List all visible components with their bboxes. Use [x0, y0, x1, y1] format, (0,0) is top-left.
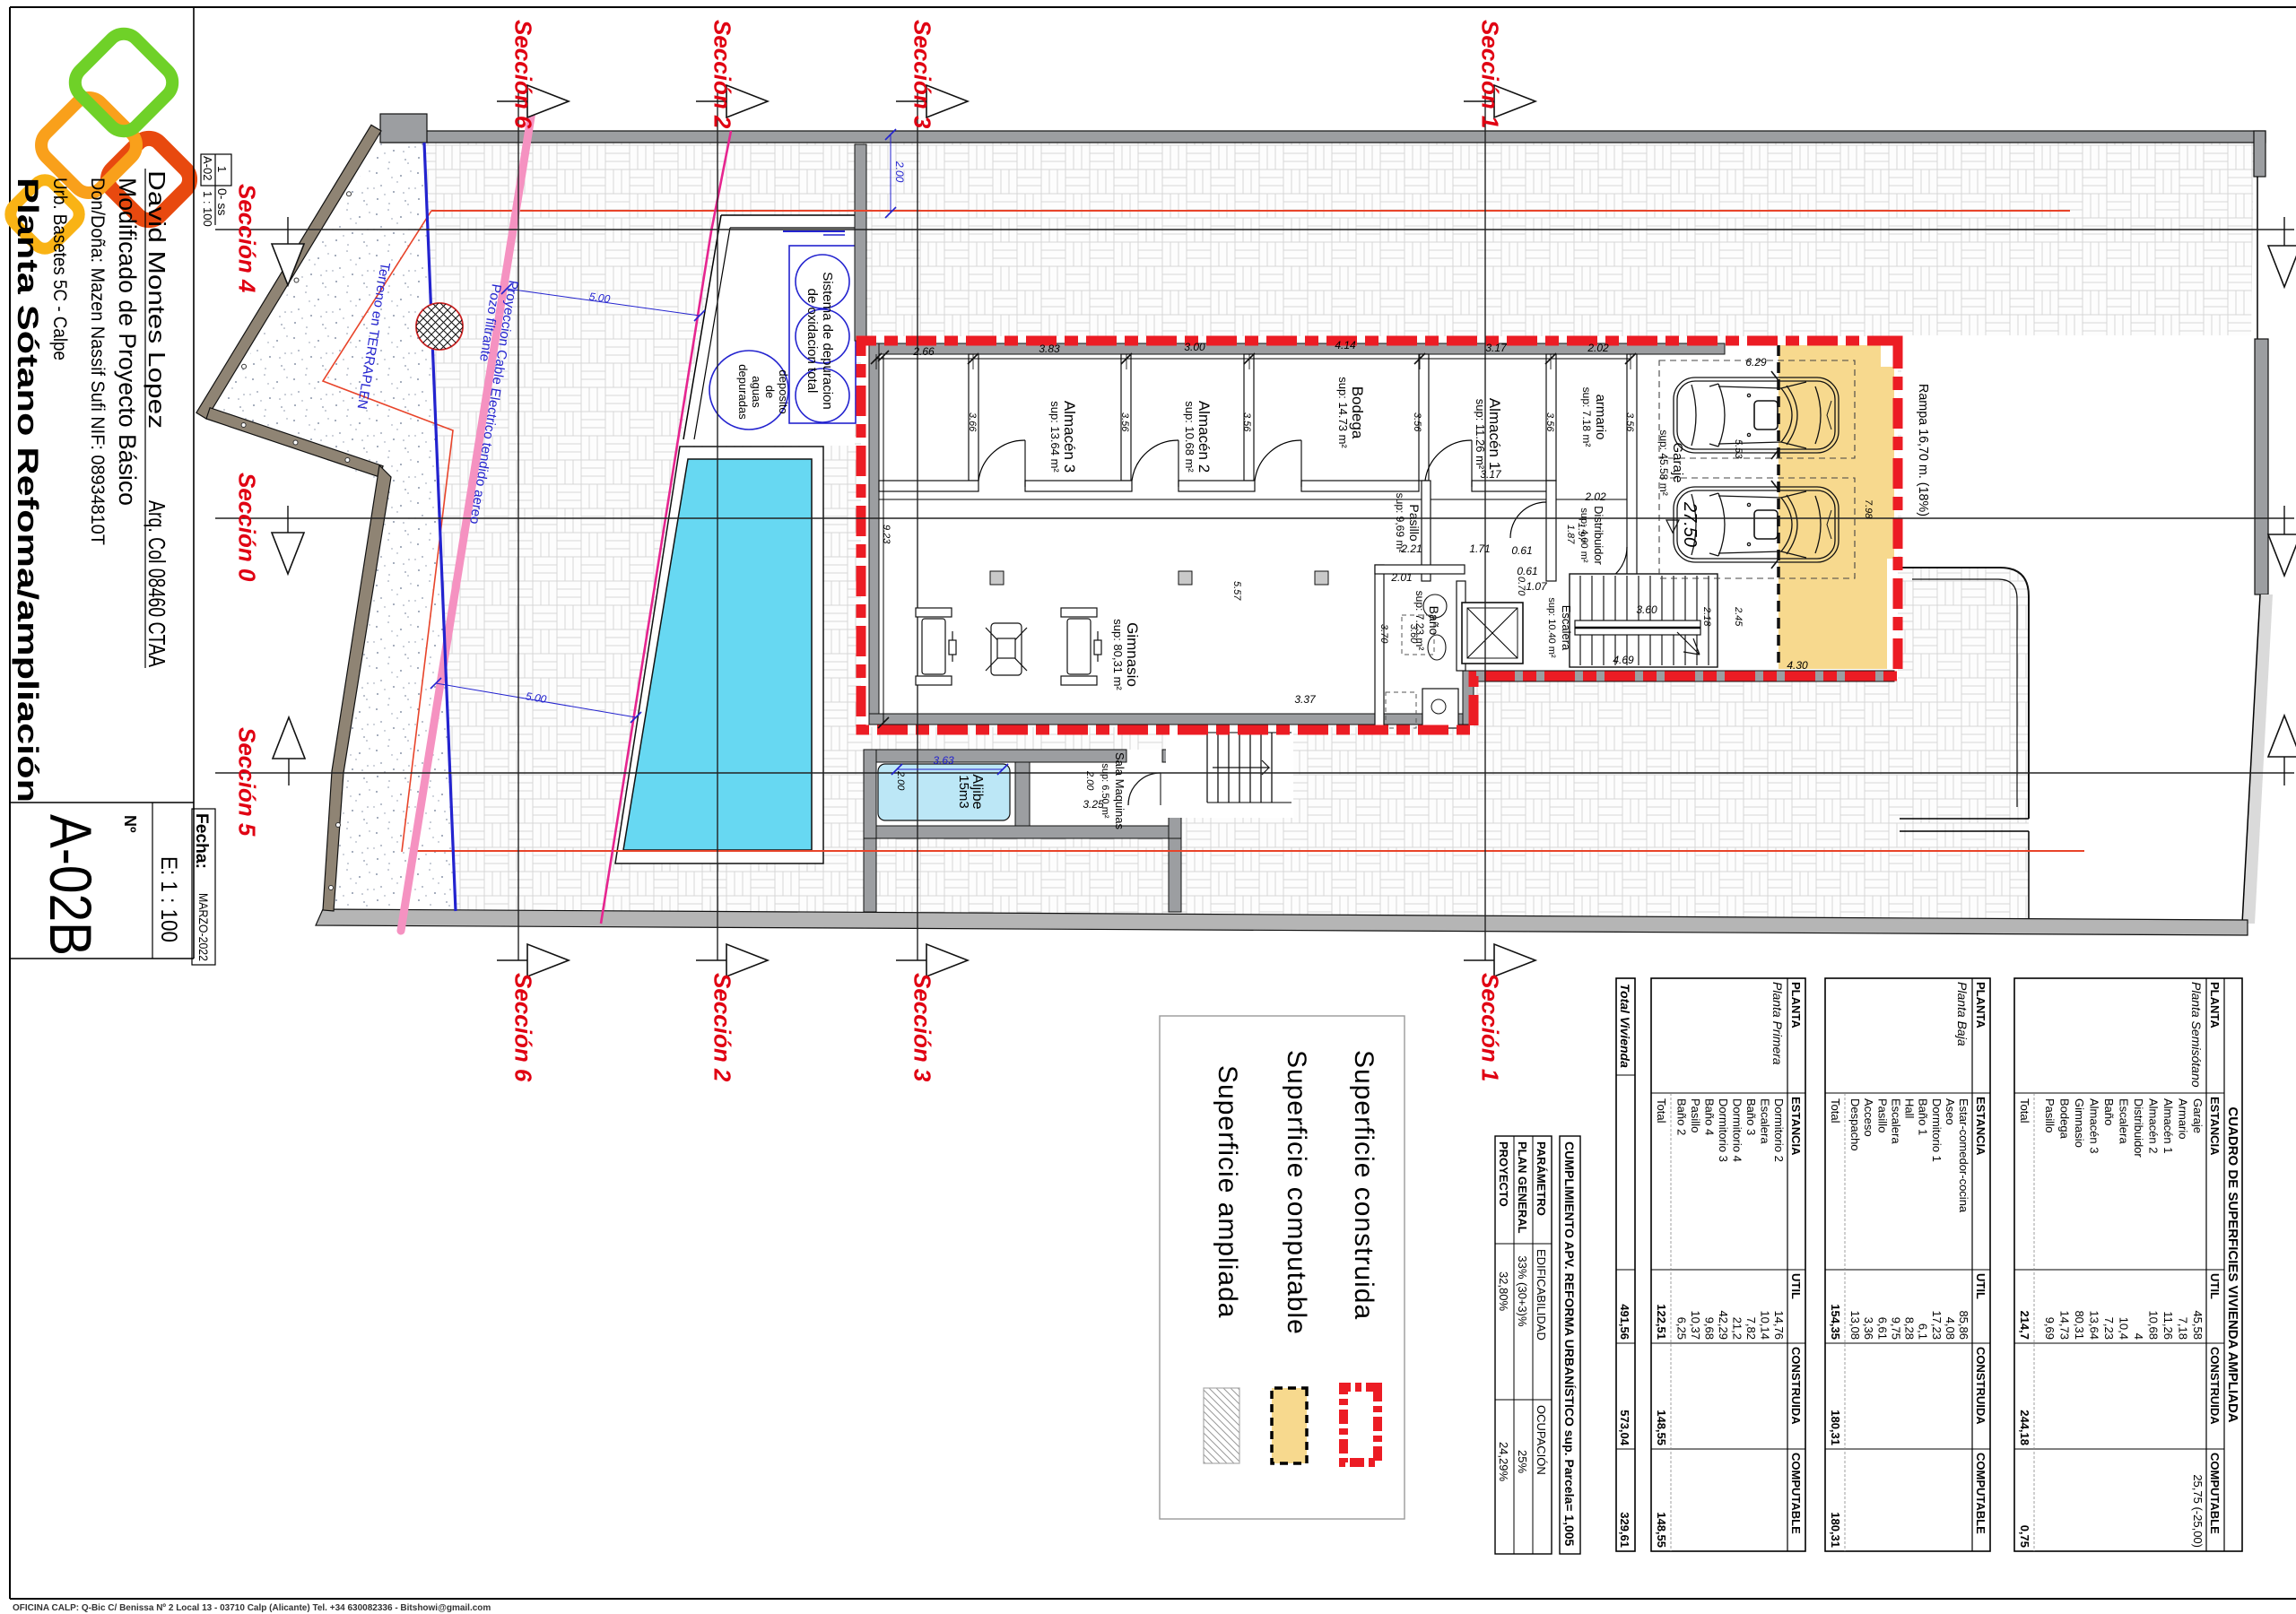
svg-text:Total Vivienda: Total Vivienda [1618, 984, 1632, 1068]
svg-text:3,36: 3,36 [1862, 1317, 1875, 1340]
svg-text:15m3: 15m3 [956, 775, 971, 809]
svg-text:Distribuidor: Distribuidor [2132, 1098, 2145, 1158]
svg-text:E: 1 : 100: E: 1 : 100 [156, 856, 181, 942]
svg-text:329,61: 329,61 [1618, 1512, 1631, 1548]
svg-text:CONSTRUIDA: CONSTRUIDA [2208, 1347, 2222, 1425]
svg-text:Almacén 2: Almacén 2 [1196, 401, 1213, 473]
svg-text:Sección 6: Sección 6 [510, 973, 537, 1082]
svg-text:25%: 25% [1516, 1450, 1529, 1473]
svg-text:PLANTA: PLANTA [1974, 982, 1987, 1028]
svg-text:CONSTRUIDA: CONSTRUIDA [1789, 1347, 1803, 1425]
svg-text:45,58: 45,58 [2191, 1310, 2205, 1340]
svg-text:Pasillo: Pasillo [1875, 1098, 1889, 1132]
svg-text:Baño: Baño [2102, 1098, 2116, 1125]
svg-text:Planta Sótano Refoma/ampliació: Planta Sótano Refoma/ampliación [12, 178, 44, 803]
svg-text:14,73: 14,73 [2058, 1310, 2072, 1340]
svg-text:180,31: 180,31 [1829, 1512, 1842, 1548]
svg-text:Gimnasio: Gimnasio [1124, 622, 1141, 687]
svg-text:2.00: 2.00 [1084, 770, 1095, 791]
svg-text:sup: 13.64 m²: sup: 13.64 m² [1048, 401, 1062, 473]
svg-text:Nº: Nº [121, 815, 139, 833]
svg-text:MARZO-2022: MARZO-2022 [196, 893, 210, 961]
svg-text:2.02: 2.02 [1587, 342, 1609, 354]
svg-text:Almacén 3: Almacén 3 [2088, 1098, 2101, 1153]
svg-text:Escalera: Escalera [1889, 1098, 1902, 1144]
svg-text:10,37: 10,37 [1689, 1310, 1702, 1340]
svg-text:Arq. Col 08460 CTAA: Arq. Col 08460 CTAA [143, 500, 170, 667]
svg-text:A-02: A-02 [201, 156, 214, 180]
svg-text:Estar-comedor-cocina: Estar-comedor-cocina [1957, 1098, 1970, 1213]
svg-text:0.61: 0.61 [1511, 544, 1532, 557]
svg-text:10,68: 10,68 [2147, 1310, 2161, 1340]
svg-text:Bodega: Bodega [2058, 1098, 2072, 1140]
svg-text:sup: 45.58 m²: sup: 45.58 m² [1657, 430, 1670, 495]
svg-text:Dormitorio 2: Dormitorio 2 [1772, 1098, 1786, 1162]
svg-text:Despacho: Despacho [1848, 1098, 1862, 1151]
svg-text:CUMPLIMIENTO APV. REFORMA URBA: CUMPLIMIENTO APV. REFORMA URBANÍSTICO su… [1562, 1141, 1577, 1547]
svg-text:6,25: 6,25 [1675, 1317, 1689, 1340]
svg-text:1 : 100: 1 : 100 [201, 191, 214, 227]
svg-text:9,75: 9,75 [1889, 1317, 1902, 1340]
svg-text:UTIL: UTIL [1974, 1273, 1987, 1299]
svg-text:Baño 1: Baño 1 [1917, 1098, 1930, 1135]
svg-text:Planta Baja: Planta Baja [1955, 982, 1970, 1046]
svg-text:6,1: 6,1 [1917, 1323, 1930, 1340]
svg-text:Total: Total [1829, 1098, 1842, 1124]
svg-text:5.53: 5.53 [1733, 439, 1744, 459]
svg-text:Urb. Basetes 5C - Calpe: Urb. Basetes 5C - Calpe [49, 178, 70, 360]
svg-text:4.14: 4.14 [1335, 339, 1356, 351]
svg-text:sup: 7.18 m²: sup: 7.18 m² [1580, 387, 1593, 447]
svg-text:Sala Maquinas: Sala Maquinas [1113, 752, 1126, 829]
svg-text:2.01: 2.01 [1390, 571, 1412, 584]
svg-text:148,55: 148,55 [1655, 1512, 1668, 1548]
svg-text:17,23: 17,23 [1930, 1310, 1944, 1340]
svg-text:3.56: 3.56 [1624, 412, 1635, 432]
svg-text:25,75 (-25,00): 25,75 (-25,00) [2191, 1474, 2205, 1548]
svg-text:Sección 2: Sección 2 [709, 20, 736, 129]
svg-text:244,18: 244,18 [2018, 1410, 2031, 1445]
svg-text:3.83: 3.83 [1039, 343, 1060, 355]
svg-text:depuradas: depuradas [736, 364, 750, 420]
svg-text:33% (30+3)%: 33% (30+3)% [1516, 1255, 1529, 1327]
svg-text:Hall: Hall [1903, 1098, 1917, 1119]
svg-text:Bodega: Bodega [1349, 386, 1366, 439]
svg-text:Sistema de depuracion: Sistema de depuracion [820, 272, 835, 409]
svg-text:Gimnasio: Gimnasio [2073, 1098, 2086, 1148]
svg-text:CONSTRUIDA: CONSTRUIDA [1974, 1347, 1987, 1425]
svg-text:COMPUTABLE: COMPUTABLE [2208, 1453, 2222, 1534]
svg-text:14,76: 14,76 [1772, 1310, 1786, 1340]
svg-text:9,69: 9,69 [2043, 1317, 2057, 1340]
svg-text:sup: 4.00 m²: sup: 4.00 m² [1578, 508, 1589, 562]
svg-text:Almacén 3: Almacén 3 [1061, 401, 1078, 473]
svg-text:Sección 5: Sección 5 [234, 727, 261, 837]
svg-text:85,86: 85,86 [1957, 1310, 1970, 1340]
svg-text:Almacén 2: Almacén 2 [2147, 1098, 2161, 1153]
svg-text:5.57: 5.57 [1231, 581, 1242, 601]
svg-text:573,04: 573,04 [1618, 1410, 1631, 1446]
svg-text:80,31: 80,31 [2073, 1310, 2086, 1340]
svg-text:4.69: 4.69 [1613, 654, 1634, 666]
svg-text:3.56: 3.56 [1241, 412, 1252, 432]
svg-text:3.17: 3.17 [1485, 342, 1508, 354]
svg-text:ESTANCIA: ESTANCIA [2208, 1097, 2222, 1156]
svg-text:Baño 4: Baño 4 [1703, 1098, 1717, 1135]
svg-text:EDIFICABILIDAD: EDIFICABILIDAD [1535, 1249, 1548, 1341]
svg-text:13,64: 13,64 [2088, 1310, 2101, 1340]
svg-text:sup: 14.73 m²: sup: 14.73 m² [1336, 377, 1350, 448]
svg-text:deposito: deposito [777, 369, 790, 413]
svg-text:1.71: 1.71 [1469, 542, 1490, 555]
svg-text:Sección 3: Sección 3 [909, 20, 936, 129]
svg-text:Planta Semisótano: Planta Semisótano [2189, 982, 2204, 1088]
svg-text:3.60: 3.60 [1636, 603, 1657, 616]
svg-text:0,75: 0,75 [2018, 1525, 2031, 1548]
svg-text:3.70: 3.70 [1378, 624, 1389, 644]
svg-text:Pasillo: Pasillo [1407, 504, 1422, 541]
svg-text:42,29: 42,29 [1717, 1310, 1730, 1340]
svg-text:Superficie computable: Superficie computable [1282, 1050, 1311, 1335]
svg-text:4.30: 4.30 [1787, 659, 1808, 672]
svg-text:Dormitorio 1: Dormitorio 1 [1930, 1098, 1944, 1162]
svg-text:ESTANCIA: ESTANCIA [1974, 1097, 1987, 1156]
svg-text:3.56: 3.56 [1544, 412, 1555, 432]
svg-text:Garaje: Garaje [1670, 442, 1685, 482]
svg-text:PROYECTO: PROYECTO [1497, 1141, 1510, 1207]
svg-text:7,23: 7,23 [2102, 1317, 2116, 1340]
svg-text:Baño: Baño [1427, 606, 1441, 636]
svg-text:PLANTA: PLANTA [2208, 982, 2222, 1028]
svg-text:9,68: 9,68 [1703, 1317, 1717, 1340]
svg-text:UTIL: UTIL [2208, 1273, 2222, 1299]
svg-text:COMPUTABLE: COMPUTABLE [1974, 1453, 1987, 1534]
svg-text:Distribuidor: Distribuidor [1592, 506, 1605, 565]
svg-text:Dormitorio 4: Dormitorio 4 [1731, 1098, 1744, 1162]
svg-text:32,80%: 32,80% [1497, 1271, 1510, 1312]
svg-text:sup: 6.50 m²: sup: 6.50 m² [1100, 763, 1110, 818]
svg-text:CUADRO DE SUPERFICIES VIVIENDA: CUADRO DE SUPERFICIES VIVIENDA AMPLIADA [2225, 1106, 2240, 1422]
svg-text:Sección 1: Sección 1 [1477, 20, 1504, 128]
svg-text:27.50: 27.50 [1680, 501, 1700, 547]
svg-text:1.07: 1.07 [1526, 580, 1548, 593]
svg-text:10,14: 10,14 [1759, 1310, 1772, 1340]
svg-text:PARÁMETRO: PARÁMETRO [1535, 1141, 1548, 1216]
svg-text:214,7: 214,7 [2018, 1310, 2031, 1340]
svg-text:Total: Total [1655, 1098, 1668, 1124]
svg-text:1: 1 [215, 166, 229, 172]
svg-text:24,29%: 24,29% [1497, 1442, 1510, 1482]
svg-text:Escalera: Escalera [1560, 605, 1573, 651]
svg-text:Pasillo: Pasillo [1689, 1098, 1702, 1132]
svg-text:Dormitorio 3: Dormitorio 3 [1717, 1098, 1730, 1162]
svg-text:Escalera: Escalera [1759, 1098, 1772, 1144]
svg-text:Baño 2: Baño 2 [1675, 1098, 1689, 1135]
svg-text:11,26: 11,26 [2161, 1311, 2175, 1340]
svg-text:Pasillo: Pasillo [2043, 1098, 2057, 1132]
svg-text:aguas: aguas [750, 376, 763, 408]
svg-text:6.29: 6.29 [1745, 356, 1767, 369]
svg-text:154,35: 154,35 [1829, 1304, 1842, 1340]
svg-text:Sección 6: Sección 6 [510, 20, 537, 129]
svg-text:Superficie ampliada: Superficie ampliada [1213, 1065, 1242, 1318]
svg-text:Don/Doña: Mazen Nassif Sufi: Don/Doña: Mazen Nassif Sufi NIF: 0893481… [87, 178, 108, 545]
svg-text:180,31: 180,31 [1829, 1410, 1842, 1445]
svg-text:Modificado de Proyecto Básico: Modificado de Proyecto Básico [114, 178, 141, 506]
svg-text:3.63: 3.63 [933, 754, 954, 767]
svg-text:OFICINA CALP: Q-Bic C/ Benissa: OFICINA CALP: Q-Bic C/ Benissa Nº 2 Loca… [13, 1603, 491, 1613]
svg-text:Rampa 16,70 m. (18%): Rampa 16,70 m. (18%) [1916, 384, 1931, 516]
svg-text:122,51: 122,51 [1655, 1304, 1668, 1340]
svg-text:9.23: 9.23 [881, 525, 891, 544]
svg-text:491,56: 491,56 [1618, 1304, 1631, 1340]
svg-text:2.66: 2.66 [912, 345, 935, 358]
svg-text:armario: armario [1593, 395, 1608, 440]
svg-text:21,2: 21,2 [1731, 1317, 1744, 1340]
svg-text:sup: 10.40 m²: sup: 10.40 m² [1546, 597, 1557, 658]
svg-text:Sección 2: Sección 2 [709, 973, 736, 1082]
svg-text:UTIL: UTIL [1789, 1273, 1803, 1299]
svg-text:Sección 1: Sección 1 [1477, 973, 1504, 1081]
svg-text:2.00: 2.00 [893, 161, 906, 183]
svg-text:Fecha:: Fecha: [192, 813, 211, 869]
svg-text:Garaje: Garaje [2191, 1098, 2205, 1133]
svg-text:sup: 10.68 m²: sup: 10.68 m² [1183, 401, 1196, 473]
svg-text:Sección 4: Sección 4 [234, 184, 261, 293]
svg-text:0.61: 0.61 [1517, 565, 1537, 577]
svg-text:sup: 9,69 m²: sup: 9,69 m² [1394, 493, 1406, 553]
svg-text:ESTANCIA: ESTANCIA [1789, 1097, 1803, 1156]
svg-text:sup: 11.26 m²: sup: 11.26 m² [1474, 399, 1487, 470]
svg-text:3.00: 3.00 [1184, 341, 1205, 353]
svg-text:Almacén 1: Almacén 1 [2161, 1098, 2175, 1153]
svg-text:Sección 0: Sección 0 [234, 473, 261, 582]
svg-text:2.00: 2.00 [895, 770, 906, 791]
svg-text:de: de [763, 386, 777, 398]
svg-text:Almacén 1: Almacén 1 [1486, 398, 1503, 470]
svg-text:PLAN GENERAL: PLAN GENERAL [1516, 1141, 1529, 1234]
svg-text:Aseo: Aseo [1944, 1098, 1957, 1125]
svg-text:Baño 3: Baño 3 [1744, 1098, 1758, 1135]
svg-text:de oxidacion total: de oxidacion total [804, 289, 820, 394]
svg-text:sup: 80,31 m²: sup: 80,31 m² [1111, 619, 1125, 690]
svg-text:1.87: 1.87 [1565, 525, 1576, 544]
svg-text:A-02B: A-02B [38, 814, 104, 956]
svg-text:Total: Total [2018, 1098, 2031, 1124]
svg-text:7.98: 7.98 [1863, 499, 1874, 519]
svg-text:OCUPACIÓN: OCUPACIÓN [1535, 1405, 1548, 1475]
svg-text:Escalera: Escalera [2118, 1098, 2131, 1144]
svg-text:Sección 3: Sección 3 [909, 973, 936, 1082]
svg-text:Acceso: Acceso [1862, 1098, 1875, 1137]
svg-text:2.18: 2.18 [1701, 606, 1712, 627]
svg-text:2.45: 2.45 [1733, 606, 1744, 627]
svg-text:Superficie construida: Superficie construida [1349, 1050, 1378, 1320]
svg-text:3.56: 3.56 [1412, 412, 1422, 432]
svg-text:PLANTA: PLANTA [1789, 982, 1803, 1028]
svg-text:6,61: 6,61 [1875, 1317, 1889, 1340]
svg-text:0- ss: 0- ss [215, 188, 230, 215]
svg-text:3.66: 3.66 [967, 412, 978, 432]
svg-text:Armario: Armario [2177, 1098, 2190, 1140]
svg-text:8,28: 8,28 [1903, 1317, 1917, 1340]
svg-text:David Montes Lopez: David Montes Lopez [143, 170, 170, 429]
svg-text:4,08: 4,08 [1944, 1317, 1957, 1340]
svg-text:COMPUTABLE: COMPUTABLE [1789, 1453, 1803, 1534]
svg-text:10,4: 10,4 [2118, 1317, 2131, 1340]
svg-text:7,82: 7,82 [1744, 1317, 1758, 1340]
svg-text:13,08: 13,08 [1848, 1310, 1862, 1340]
svg-text:7,18: 7,18 [2177, 1317, 2190, 1340]
svg-text:sup: 7.23 m²: sup: 7.23 m² [1413, 591, 1426, 651]
svg-text:2.02: 2.02 [1584, 490, 1606, 503]
svg-text:3.56: 3.56 [1119, 412, 1130, 432]
svg-text:0.70: 0.70 [1516, 577, 1526, 596]
svg-text:Planta Primera: Planta Primera [1770, 982, 1785, 1065]
svg-text:4: 4 [2132, 1333, 2145, 1340]
svg-text:3.37: 3.37 [1294, 693, 1317, 706]
svg-text:148,55: 148,55 [1655, 1410, 1668, 1445]
